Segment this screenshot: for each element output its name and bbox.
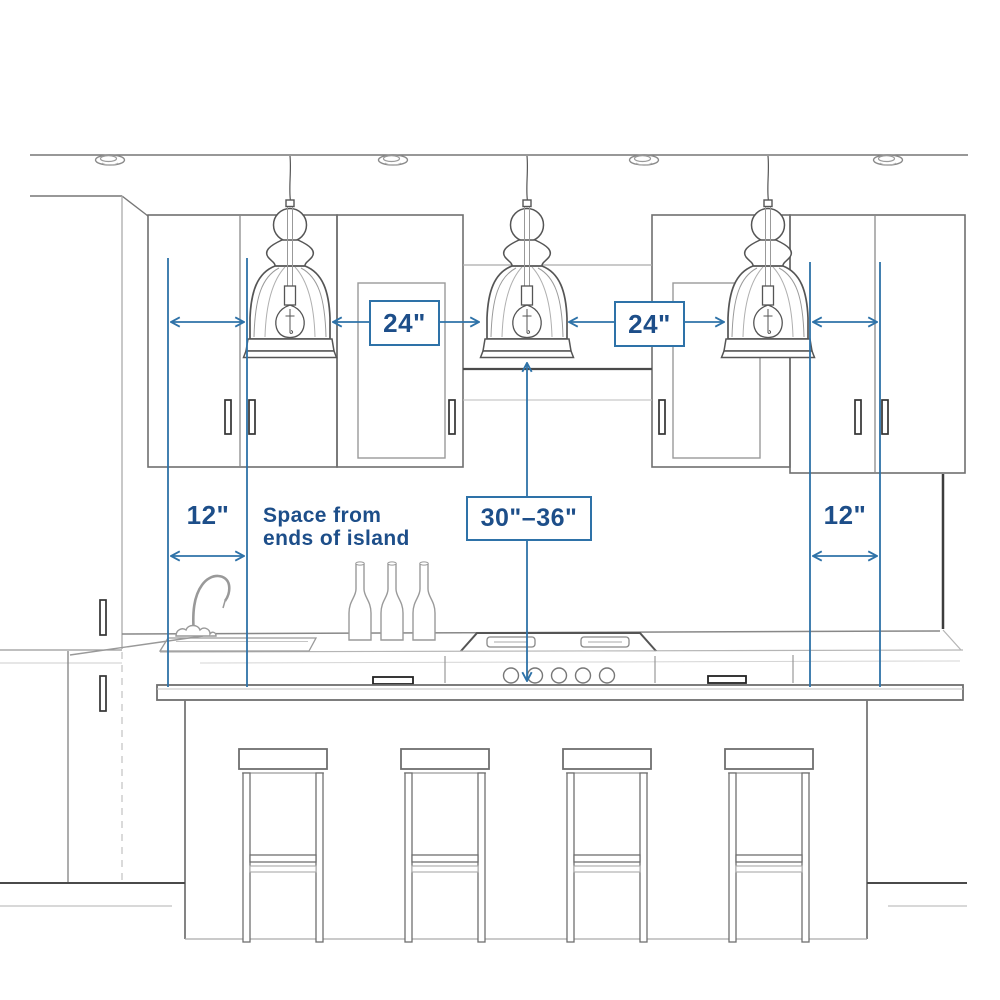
note-line-2: ends of island (263, 527, 410, 550)
dimension-label-end-space-right: 12" (814, 501, 876, 529)
pendant-gap-left-value: 24" (383, 308, 426, 339)
island-end-space-note: Space from ends of island (263, 504, 410, 550)
bar-stools (239, 749, 813, 942)
note-line-1: Space from (263, 504, 410, 527)
pendant-light-center (481, 156, 574, 358)
dimension-box-pendant-gap-right: 24" (614, 301, 685, 347)
end-space-right-value: 12" (824, 500, 867, 531)
faucet-icon (176, 576, 229, 636)
right-wall (943, 474, 961, 650)
height-above-counter-value: 30"–36" (481, 504, 578, 533)
left-wall (0, 196, 148, 883)
pendant-light-left (244, 156, 337, 358)
recessed-light-icon (96, 155, 903, 165)
kitchen-island (157, 685, 963, 939)
end-space-left-value: 12" (187, 500, 230, 531)
pendant-light-right (722, 156, 815, 358)
wine-bottles-icon (349, 562, 435, 640)
kitchen-measurement-diagram: 24" 24" 30"–36" 12" 12" Space from ends … (0, 0, 1000, 1000)
pendant-gap-right-value: 24" (628, 309, 671, 340)
sink (160, 638, 316, 651)
dimension-box-pendant-gap-left: 24" (369, 300, 440, 346)
dimension-label-end-space-left: 12" (177, 501, 239, 529)
dimension-box-height-above-counter: 30"–36" (466, 496, 592, 541)
